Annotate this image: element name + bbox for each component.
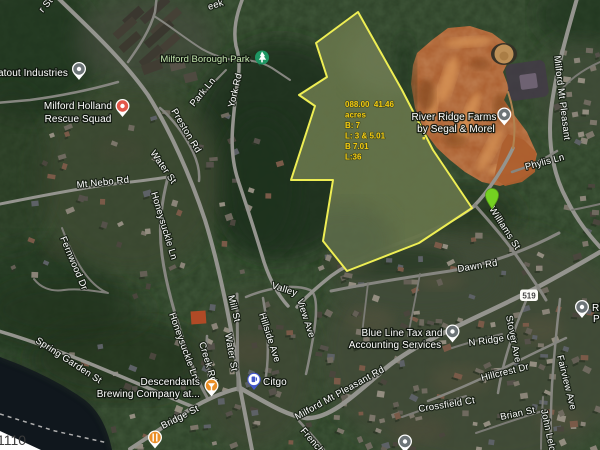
svg-text:Blue Line Tax and: Blue Line Tax and [361, 328, 442, 339]
svg-text:088.00 41.46: 088.00 41.46 [345, 100, 394, 109]
svg-text:1110: 1110 [0, 432, 26, 448]
svg-text:Citgo: Citgo [263, 377, 287, 388]
svg-text:Ri: Ri [592, 303, 600, 314]
svg-text:Descendants: Descendants [141, 377, 200, 388]
svg-text:acres: acres [345, 111, 366, 120]
svg-text:B 7.01: B 7.01 [345, 142, 369, 151]
svg-text:by Segal & Morel: by Segal & Morel [417, 124, 495, 135]
svg-text:519: 519 [522, 292, 536, 301]
svg-text:Rescue Squad: Rescue Squad [45, 114, 112, 125]
svg-text:Accounting Services: Accounting Services [349, 340, 442, 351]
svg-text:Brewing Company at...: Brewing Company at... [97, 389, 200, 400]
svg-text:B: 7: B: 7 [345, 121, 361, 130]
svg-text:Milford Holland: Milford Holland [44, 101, 112, 112]
svg-text:L: 3 & 5.01: L: 3 & 5.01 [345, 132, 386, 141]
svg-text:P: P [593, 314, 600, 325]
svg-text:atout Industries: atout Industries [0, 68, 68, 79]
svg-text:Milford Borough Park: Milford Borough Park [160, 54, 249, 65]
svg-text:River Ridge Farms: River Ridge Farms [411, 112, 496, 123]
svg-text:L:36: L:36 [345, 153, 362, 162]
